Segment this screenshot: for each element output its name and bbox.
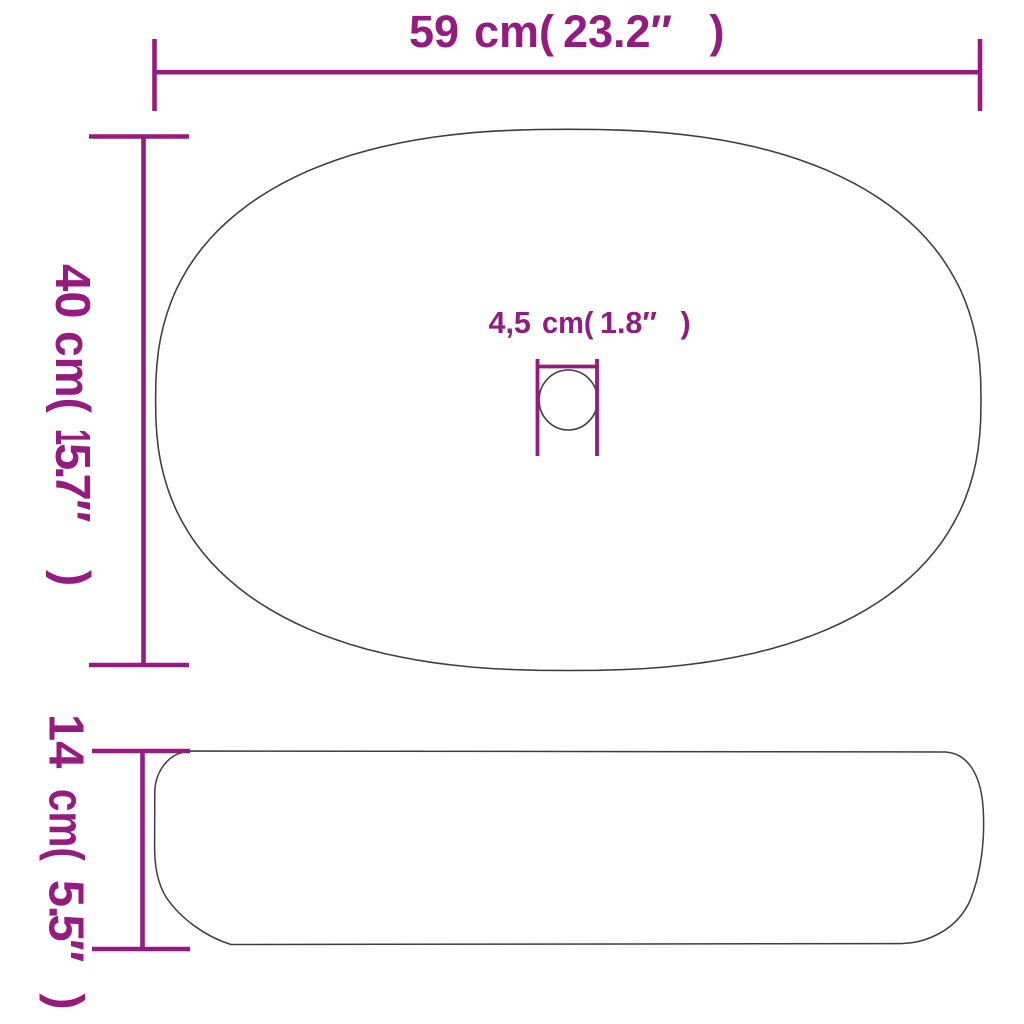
svg-text:14cm(5.5″): 14cm(5.5″) — [39, 714, 93, 1010]
svg-text:40cm(15.7″): 40cm(15.7″) — [45, 264, 99, 586]
svg-text:59cm(23.2″): 59cm(23.2″) — [409, 6, 725, 57]
svg-text:4,5cm(1.8″): 4,5cm(1.8″) — [489, 306, 691, 340]
